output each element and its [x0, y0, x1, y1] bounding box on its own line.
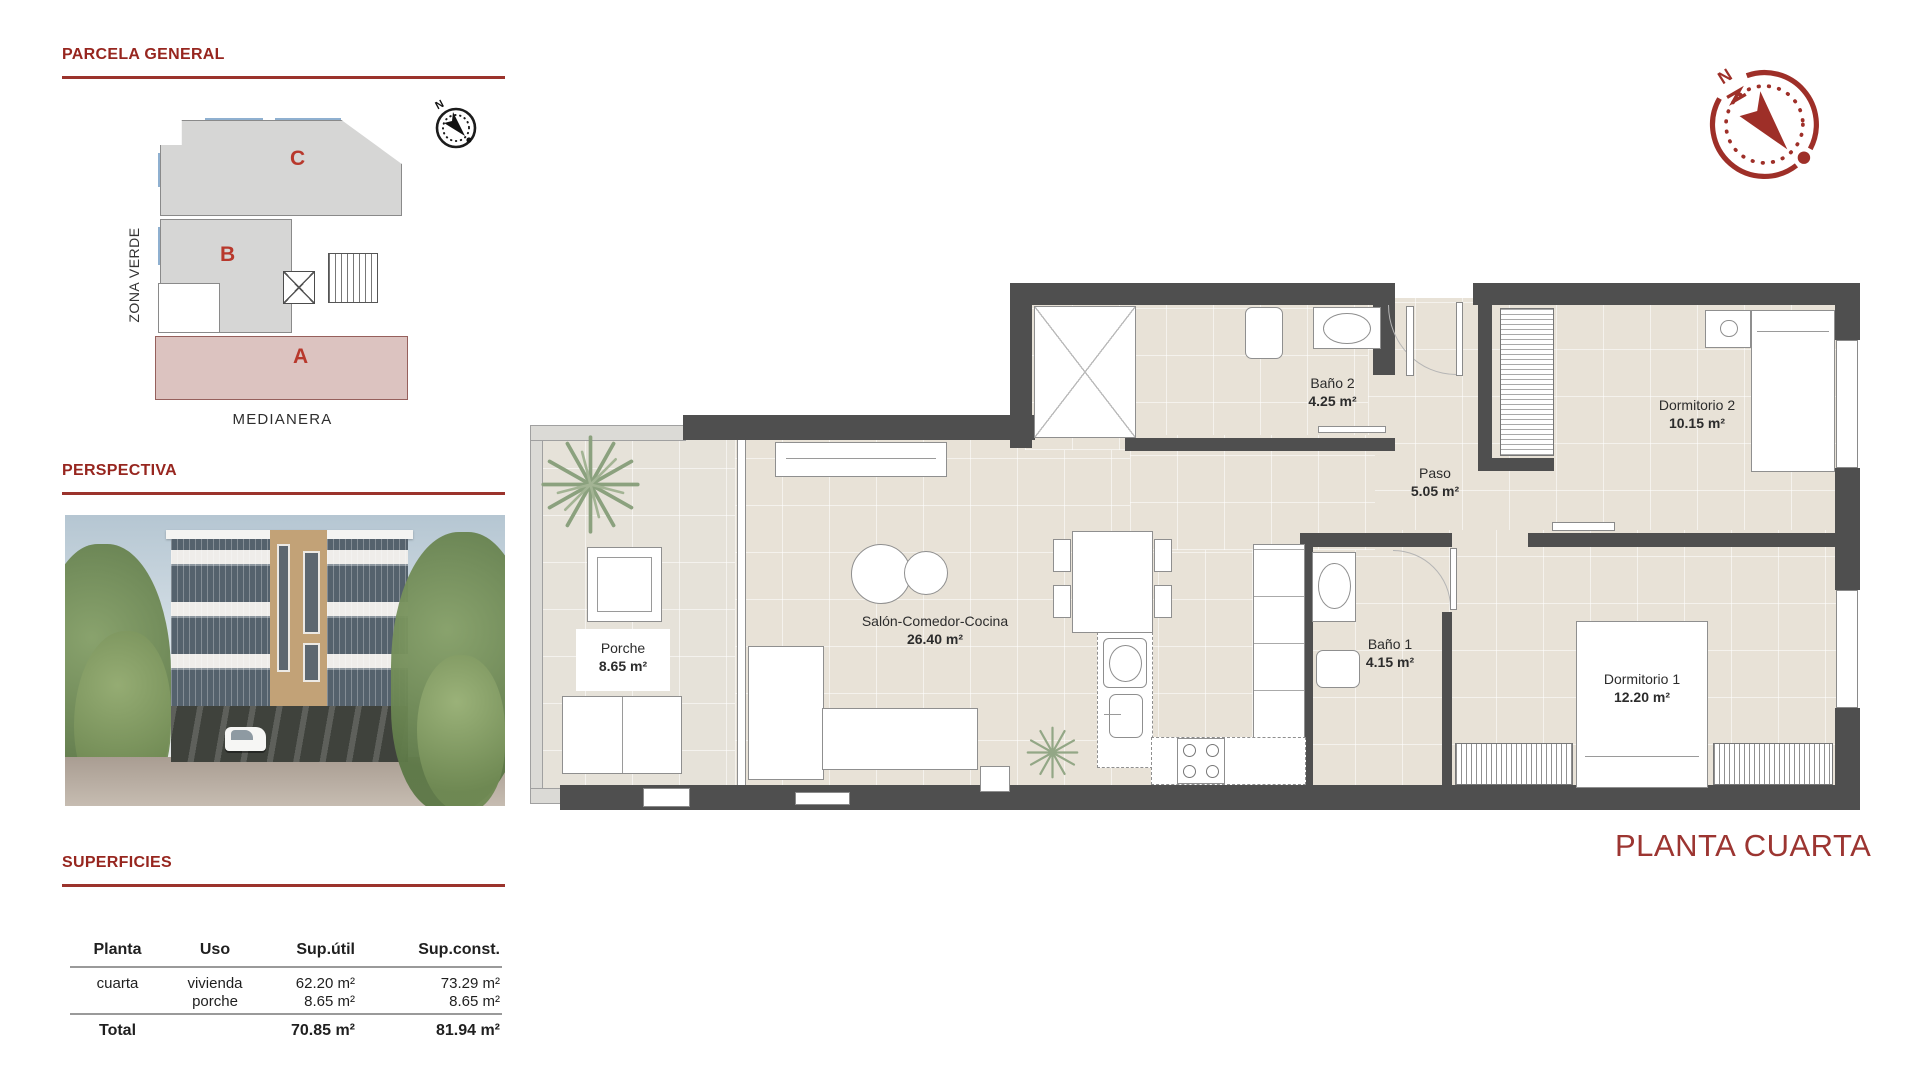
- plan-title: PLANTA CUARTA: [1615, 828, 1871, 864]
- palm-tree-icon: [538, 432, 643, 537]
- col-header-sup-util: Sup.útil: [255, 941, 355, 959]
- towel-rail: [1318, 426, 1386, 433]
- room-name: Baño 2: [1270, 374, 1395, 392]
- window-radiator: [1713, 743, 1833, 785]
- total-label: Total: [70, 1022, 165, 1040]
- cell-uso-1: vivienda: [165, 975, 265, 992]
- table-rule: [70, 966, 502, 968]
- wardrobe: [1500, 308, 1554, 456]
- washbasin: [1313, 307, 1381, 349]
- bano1-door-leaf: [1450, 548, 1457, 610]
- room-label-porche: Porche 8.65 m²: [576, 629, 670, 691]
- building-center-column: [270, 530, 327, 707]
- window-edge: [275, 118, 341, 120]
- window: [643, 788, 690, 807]
- kitchen-tall-units: [1253, 544, 1305, 738]
- room-label-bano2: Baño 2 4.25 m²: [1270, 374, 1395, 410]
- wall: [1010, 283, 1395, 305]
- room-name: Dormitorio 2: [1612, 396, 1782, 414]
- window-radiator: [1455, 743, 1573, 785]
- dining-table: [1072, 531, 1153, 633]
- col-header-sup-const: Sup.const.: [360, 941, 500, 959]
- site-courtyard: [158, 283, 220, 333]
- wall: [1835, 468, 1860, 590]
- wall: [1478, 283, 1492, 471]
- porche-glass-divider: [737, 440, 746, 788]
- chair: [1154, 539, 1172, 572]
- kitchen-counter: [1151, 737, 1306, 785]
- sideboard: [775, 442, 947, 477]
- compass-n-label: N: [1714, 64, 1735, 88]
- elevator-icon: [283, 271, 315, 304]
- chair: [1154, 585, 1172, 618]
- site-label-b: B: [220, 243, 235, 267]
- cell-planta: cuarta: [70, 975, 165, 992]
- building-ground-floor: [171, 706, 409, 762]
- room-area: 4.15 m²: [1325, 653, 1455, 671]
- superficies-rule: [62, 884, 505, 887]
- entry-door-leaf: [1456, 302, 1463, 376]
- window-edge: [158, 227, 160, 265]
- wall: [1300, 533, 1452, 547]
- chair: [1053, 539, 1071, 572]
- kitchen-sink: [1103, 638, 1147, 688]
- room-area: 5.05 m²: [1375, 482, 1495, 500]
- porche-table: [587, 547, 662, 622]
- site-block-a: [155, 336, 408, 400]
- room-label-paso: Paso 5.05 m²: [1375, 464, 1495, 500]
- car: [225, 727, 265, 750]
- round-table: [904, 551, 948, 595]
- total-const: 81.94 m²: [360, 1022, 500, 1040]
- window-edge: [205, 118, 263, 120]
- room-area: 10.15 m²: [1612, 414, 1782, 432]
- wall: [683, 415, 1035, 440]
- toilet: [1245, 307, 1283, 359]
- total-util: 70.85 m²: [255, 1022, 355, 1040]
- room-area: 8.65 m²: [576, 657, 670, 675]
- room-label-bano1: Baño 1 4.15 m²: [1325, 635, 1455, 671]
- window: [1836, 590, 1858, 708]
- room-name: Paso: [1375, 464, 1495, 482]
- sofa: [748, 646, 824, 780]
- room-area: 26.40 m²: [825, 630, 1045, 648]
- shower: [1034, 306, 1136, 438]
- room-name: Porche: [576, 639, 670, 657]
- room-name: Salón-Comedor-Cocina: [825, 612, 1045, 630]
- tree: [417, 655, 505, 806]
- site-label-a: A: [293, 345, 308, 369]
- window: [1836, 340, 1858, 468]
- washbasin: [1312, 552, 1356, 622]
- north-compass-icon: N: [1698, 58, 1833, 193]
- superficies-title: SUPERFICIES: [62, 854, 172, 872]
- room-name: Dormitorio 1: [1557, 670, 1727, 688]
- col-header-planta: Planta: [70, 941, 165, 959]
- cell-uso-2: porche: [165, 993, 265, 1010]
- stairs-icon: [328, 253, 378, 303]
- col-header-uso: Uso: [165, 941, 265, 959]
- medianera-label: MEDIANERA: [200, 411, 365, 428]
- brochure-page: PARCELA GENERAL C B A ZONA VERDE MEDIANE…: [0, 0, 1920, 1080]
- site-block-c: [160, 120, 402, 216]
- site-compass-icon: N: [426, 96, 484, 156]
- table-rule: [70, 1013, 502, 1015]
- wall: [1010, 283, 1032, 448]
- cell-const-2: 8.65 m²: [360, 993, 500, 1010]
- wall: [1528, 533, 1860, 547]
- wall: [560, 785, 1860, 810]
- building-render: [65, 515, 505, 806]
- porche-lounge: [562, 696, 682, 774]
- bed: [1751, 310, 1835, 472]
- building: [171, 530, 409, 763]
- wall: [1125, 438, 1395, 451]
- window: [795, 792, 850, 805]
- parcela-rule: [62, 76, 505, 79]
- site-label-c: C: [290, 147, 305, 171]
- room-area: 4.25 m²: [1270, 392, 1395, 410]
- stove: [1177, 738, 1225, 784]
- round-table: [851, 544, 911, 604]
- room-area: 12.20 m²: [1557, 688, 1727, 706]
- wall: [1473, 283, 1860, 305]
- room-label-salon: Salón-Comedor-Cocina 26.40 m²: [825, 612, 1045, 648]
- entry-sidelight: [1406, 306, 1414, 376]
- dorm2-door-leaf: [1552, 522, 1615, 531]
- room-label-dorm2: Dormitorio 2 10.15 m²: [1612, 396, 1782, 432]
- room-label-dorm1: Dormitorio 1 12.20 m²: [1557, 670, 1727, 706]
- building-left-wing: [171, 539, 271, 707]
- parcela-general-title: PARCELA GENERAL: [62, 46, 225, 64]
- perspectiva-title: PERSPECTIVA: [62, 462, 177, 480]
- dishwasher: [1109, 694, 1143, 738]
- pillar: [980, 766, 1010, 792]
- perspectiva-rule: [62, 492, 505, 495]
- cell-util-2: 8.65 m²: [255, 993, 355, 1010]
- sofa: [822, 708, 978, 770]
- room-name: Baño 1: [1325, 635, 1455, 653]
- zona-verde-label: ZONA VERDE: [126, 225, 142, 325]
- floor-plan: Porche 8.65 m² Salón-Comedor-Cocina 26.4…: [530, 280, 1860, 810]
- wall: [1835, 283, 1860, 340]
- site-compass-n: N: [433, 98, 446, 112]
- nightstand: [1705, 310, 1751, 348]
- cell-const-1: 73.29 m²: [360, 975, 500, 992]
- plant-icon: [1025, 725, 1080, 780]
- window-edge: [158, 153, 160, 187]
- cell-util-1: 62.20 m²: [255, 975, 355, 992]
- chair: [1053, 585, 1071, 618]
